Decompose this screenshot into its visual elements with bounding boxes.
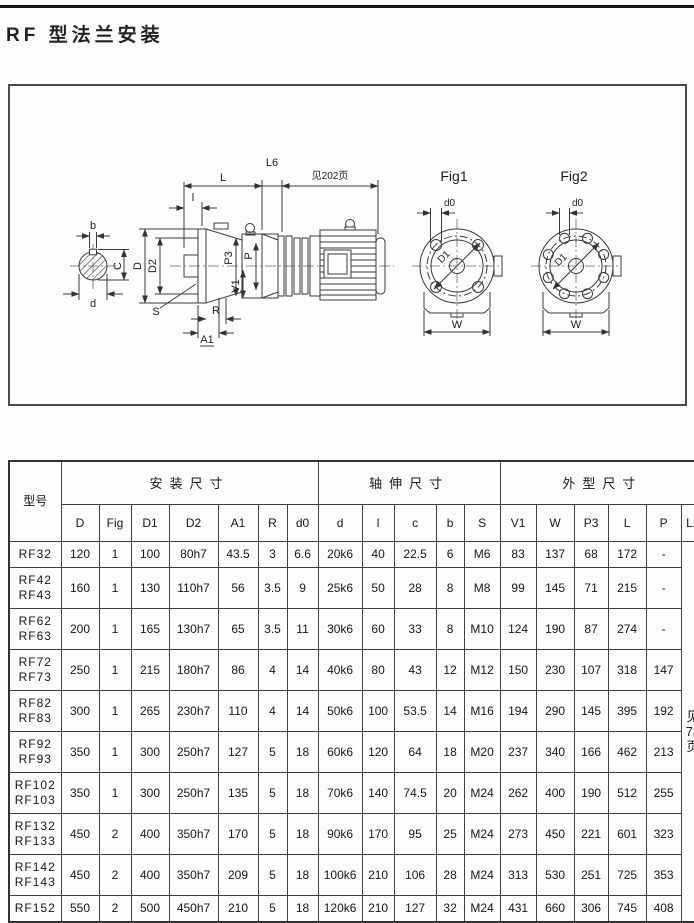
value-cell: 80 — [362, 650, 394, 691]
value-cell: 350 — [61, 732, 99, 773]
value-cell: 660 — [536, 896, 574, 923]
value-cell: 127 — [218, 732, 258, 773]
model-cell: RF82 RF83 — [9, 691, 61, 732]
value-cell: 50k6 — [318, 691, 362, 732]
col-header-R: R — [258, 505, 287, 542]
value-cell: 5 — [258, 814, 287, 855]
value-cell: 165 — [131, 609, 169, 650]
value-cell: 30k6 — [318, 609, 362, 650]
dim-label-C: C — [112, 262, 124, 270]
col-header-P3: P3 — [574, 505, 608, 542]
table-row: RF82 RF833001265230h711041450k610053.514… — [9, 691, 694, 732]
value-cell: 70k6 — [318, 773, 362, 814]
table-row: RF92 RF933501300250h712751860k61206418M2… — [9, 732, 694, 773]
value-cell: 210 — [362, 896, 394, 923]
value-cell: 12 — [436, 650, 464, 691]
value-cell: 500 — [131, 896, 169, 923]
group-header-overall: 外型尺寸 — [500, 461, 694, 505]
value-cell: 11 — [287, 609, 318, 650]
model-cell: RF62 RF63 — [9, 609, 61, 650]
fig1-caption: Fig1 — [440, 168, 467, 184]
value-cell: 25 — [436, 814, 464, 855]
col-header-S: S — [464, 505, 500, 542]
value-cell: 110 — [218, 691, 258, 732]
value-cell: M24 — [464, 773, 500, 814]
value-cell: 395 — [608, 691, 646, 732]
value-cell: 209 — [218, 855, 258, 896]
value-cell: 290 — [536, 691, 574, 732]
col-header-l: l — [362, 505, 394, 542]
value-cell: 262 — [500, 773, 536, 814]
value-cell: 8 — [436, 609, 464, 650]
value-cell: 1 — [99, 568, 131, 609]
col-header-Fig: Fig — [99, 505, 131, 542]
value-cell: 273 — [500, 814, 536, 855]
value-cell: 33 — [394, 609, 436, 650]
dim-label-b: b — [90, 220, 96, 232]
value-cell: 200 — [61, 609, 99, 650]
fig2-d0-label: d0 — [572, 198, 584, 209]
value-cell: 450 — [61, 814, 99, 855]
col-header-L: L — [608, 505, 646, 542]
value-cell: 14 — [436, 691, 464, 732]
value-cell: 400 — [131, 814, 169, 855]
value-cell: 100 — [362, 691, 394, 732]
value-cell: 350h7 — [169, 814, 218, 855]
value-cell: 221 — [574, 814, 608, 855]
value-cell: 215 — [131, 650, 169, 691]
col-header-P: P — [646, 505, 681, 542]
group-header-shaft: 轴伸尺寸 — [318, 461, 500, 505]
value-cell: 90k6 — [318, 814, 362, 855]
drawing-frame: b C d l L L6 见202页 D D2 S A1 R P3 P V1 F — [8, 84, 687, 406]
value-cell: - — [646, 542, 681, 568]
value-cell: 106 — [394, 855, 436, 896]
value-cell: 192 — [646, 691, 681, 732]
value-cell: 56 — [218, 568, 258, 609]
model-column-header: 型号 — [9, 461, 61, 542]
value-cell: M6 — [464, 542, 500, 568]
value-cell: 40k6 — [318, 650, 362, 691]
table-row: RF72 RF732501215180h78641440k6804312M121… — [9, 650, 694, 691]
value-cell: 60k6 — [318, 732, 362, 773]
value-cell: M24 — [464, 855, 500, 896]
value-cell: 28 — [436, 855, 464, 896]
col-header-V1: V1 — [500, 505, 536, 542]
value-cell: 237 — [500, 732, 536, 773]
value-cell: 745 — [608, 896, 646, 923]
value-cell: 140 — [362, 773, 394, 814]
col-header-W: W — [536, 505, 574, 542]
value-cell: 100k6 — [318, 855, 362, 896]
model-cell: RF32 — [9, 542, 61, 568]
value-cell: 265 — [131, 691, 169, 732]
value-cell: 120 — [362, 732, 394, 773]
value-cell: 306 — [574, 896, 608, 923]
value-cell: 124 — [500, 609, 536, 650]
value-cell: 400 — [131, 855, 169, 896]
value-cell: M16 — [464, 691, 500, 732]
table-row: RF102 RF1033501300250h713551870k614074.5… — [9, 773, 694, 814]
value-cell: 170 — [362, 814, 394, 855]
value-cell: 450h7 — [169, 896, 218, 923]
fig1-view — [412, 208, 502, 336]
value-cell: 1 — [99, 609, 131, 650]
value-cell: 18 — [287, 855, 318, 896]
fig1-W-label: W — [452, 319, 463, 331]
value-cell: 4 — [258, 691, 287, 732]
value-cell: 65 — [218, 609, 258, 650]
value-cell: 130 — [131, 568, 169, 609]
value-cell: 210 — [362, 855, 394, 896]
value-cell: 127 — [394, 896, 436, 923]
table-row: RF1525502500450h7210518120k621012732M244… — [9, 896, 694, 923]
value-cell: M24 — [464, 896, 500, 923]
value-cell: 512 — [608, 773, 646, 814]
value-cell: 86 — [218, 650, 258, 691]
value-cell: 147 — [646, 650, 681, 691]
page-title: RF 型法兰安装 — [6, 20, 164, 47]
value-cell: 318 — [608, 650, 646, 691]
model-cell: RF152 — [9, 896, 61, 923]
value-cell: 150 — [500, 650, 536, 691]
dim-label-V1: V1 — [230, 279, 242, 292]
model-cell: RF92 RF93 — [9, 732, 61, 773]
value-cell: 2 — [99, 855, 131, 896]
value-cell: 74.5 — [394, 773, 436, 814]
technical-drawing: b C d l L L6 见202页 D D2 S A1 R P3 P V1 F — [10, 86, 681, 400]
value-cell: 166 — [574, 732, 608, 773]
value-cell: 18 — [287, 773, 318, 814]
value-cell: 230 — [536, 650, 574, 691]
value-cell: 40 — [362, 542, 394, 568]
value-cell: 450 — [536, 814, 574, 855]
value-cell: 60 — [362, 609, 394, 650]
value-cell: 601 — [608, 814, 646, 855]
value-cell: 99 — [500, 568, 536, 609]
value-cell: 145 — [574, 691, 608, 732]
dim-label-D2: D2 — [147, 259, 159, 273]
dim-label-P3: P3 — [223, 251, 235, 264]
value-cell: 100 — [131, 542, 169, 568]
fig2-caption: Fig2 — [560, 168, 587, 184]
value-cell: 18 — [287, 896, 318, 923]
value-cell: 255 — [646, 773, 681, 814]
value-cell: 340 — [536, 732, 574, 773]
value-cell: 18 — [287, 814, 318, 855]
fig2-view — [531, 208, 621, 336]
value-cell: 14 — [287, 650, 318, 691]
value-cell: 251 — [574, 855, 608, 896]
value-cell: 300 — [61, 691, 99, 732]
value-cell: 300 — [131, 732, 169, 773]
value-cell: 107 — [574, 650, 608, 691]
value-cell: 20 — [436, 773, 464, 814]
value-cell: 350h7 — [169, 855, 218, 896]
dim-label-P: P — [243, 252, 255, 259]
dim-label-L: L — [220, 172, 226, 184]
value-cell: 83 — [500, 542, 536, 568]
value-cell: 462 — [608, 732, 646, 773]
value-cell: 120 — [61, 542, 99, 568]
value-cell: 1 — [99, 773, 131, 814]
value-cell: 180h7 — [169, 650, 218, 691]
value-cell: 145 — [536, 568, 574, 609]
see-page-note: 见202页 — [312, 170, 349, 182]
value-cell: M20 — [464, 732, 500, 773]
value-cell: 350 — [61, 773, 99, 814]
value-cell: 250 — [61, 650, 99, 691]
value-cell: 95 — [394, 814, 436, 855]
value-cell: 6.6 — [287, 542, 318, 568]
table-body: RF32120110080h743.536.620k64022.56M68313… — [9, 542, 694, 923]
table-row: RF142 RF1434502400350h7209518100k6210106… — [9, 855, 694, 896]
value-cell: 3.5 — [258, 568, 287, 609]
value-cell: M24 — [464, 814, 500, 855]
value-cell: 190 — [536, 609, 574, 650]
col-header-d0: d0 — [287, 505, 318, 542]
value-cell: 64 — [394, 732, 436, 773]
table-row: RF42 RF431601130110h7563.5925k650288M899… — [9, 568, 694, 609]
value-cell: 250h7 — [169, 732, 218, 773]
value-cell: 1 — [99, 691, 131, 732]
value-cell: 530 — [536, 855, 574, 896]
value-cell: 408 — [646, 896, 681, 923]
value-cell: 20k6 — [318, 542, 362, 568]
dim-label-l: l — [192, 192, 194, 204]
value-cell: M12 — [464, 650, 500, 691]
value-cell: 215 — [608, 568, 646, 609]
value-cell: 9 — [287, 568, 318, 609]
value-cell: 313 — [500, 855, 536, 896]
value-cell: 5 — [258, 855, 287, 896]
value-cell: 5 — [258, 896, 287, 923]
value-cell: 170 — [218, 814, 258, 855]
col-header-b: b — [436, 505, 464, 542]
value-cell: 120k6 — [318, 896, 362, 923]
value-cell: 5 — [258, 773, 287, 814]
value-cell: 1 — [99, 650, 131, 691]
value-cell: 550 — [61, 896, 99, 923]
value-cell: 14 — [287, 691, 318, 732]
value-cell: 1 — [99, 542, 131, 568]
dimension-table: 型号 安装尺寸 轴伸尺寸 外型尺寸 D Fig D1 D2 A1 R d0 d … — [8, 460, 694, 923]
table-sub-header-row: D Fig D1 D2 A1 R d0 d l c b S V1 W P3 L … — [9, 505, 694, 542]
value-cell: 210 — [218, 896, 258, 923]
table-row: RF132 RF1334502400350h717051890k61709525… — [9, 814, 694, 855]
value-cell: 18 — [436, 732, 464, 773]
value-cell: 213 — [646, 732, 681, 773]
value-cell: 68 — [574, 542, 608, 568]
model-cell: RF102 RF103 — [9, 773, 61, 814]
value-cell: 300 — [131, 773, 169, 814]
value-cell: 25k6 — [318, 568, 362, 609]
value-cell: - — [646, 609, 681, 650]
value-cell: 431 — [500, 896, 536, 923]
value-cell: 18 — [287, 732, 318, 773]
value-cell: 110h7 — [169, 568, 218, 609]
value-cell: 130h7 — [169, 609, 218, 650]
value-cell: 190 — [574, 773, 608, 814]
col-header-L2: L2 — [681, 505, 694, 542]
model-cell: RF132 RF133 — [9, 814, 61, 855]
dim-label-L6: L6 — [266, 157, 278, 169]
value-cell: 2 — [99, 814, 131, 855]
value-cell: 71 — [574, 568, 608, 609]
top-rule — [0, 5, 694, 8]
value-cell: 250h7 — [169, 773, 218, 814]
value-cell: 22.5 — [394, 542, 436, 568]
value-cell: 194 — [500, 691, 536, 732]
dim-label-A1: A1 — [200, 334, 213, 346]
value-cell: 137 — [536, 542, 574, 568]
value-cell: 32 — [436, 896, 464, 923]
value-cell: 43.5 — [218, 542, 258, 568]
col-header-d: d — [318, 505, 362, 542]
col-header-c: c — [394, 505, 436, 542]
gearmotor-outline — [184, 220, 385, 304]
group-header-mounting: 安装尺寸 — [61, 461, 318, 505]
fig1-d0-label: d0 — [444, 198, 456, 209]
table-row: RF32120110080h743.536.620k64022.56M68313… — [9, 542, 694, 568]
value-cell: 8 — [436, 568, 464, 609]
value-cell: 172 — [608, 542, 646, 568]
value-cell: 323 — [646, 814, 681, 855]
value-cell: 28 — [394, 568, 436, 609]
value-cell: 87 — [574, 609, 608, 650]
dim-label-d: d — [90, 298, 96, 310]
value-cell: 4 — [258, 650, 287, 691]
value-cell: 6 — [436, 542, 464, 568]
value-cell: 3 — [258, 542, 287, 568]
value-cell: M10 — [464, 609, 500, 650]
dim-label-D: D — [132, 262, 144, 270]
value-cell: 450 — [61, 855, 99, 896]
table-group-header-row: 型号 安装尺寸 轴伸尺寸 外型尺寸 — [9, 461, 694, 505]
value-cell: 274 — [608, 609, 646, 650]
model-cell: RF142 RF143 — [9, 855, 61, 896]
model-cell: RF42 RF43 — [9, 568, 61, 609]
l2-note-cell: 见 72 页 — [681, 542, 694, 923]
col-header-D1: D1 — [131, 505, 169, 542]
dim-label-S: S — [152, 306, 159, 318]
fig2-W-label: W — [571, 319, 582, 331]
value-cell: 3.5 — [258, 609, 287, 650]
col-header-D2: D2 — [169, 505, 218, 542]
dim-label-R: R — [212, 305, 220, 317]
value-cell: 725 — [608, 855, 646, 896]
value-cell: 160 — [61, 568, 99, 609]
value-cell: 2 — [99, 896, 131, 923]
value-cell: 230h7 — [169, 691, 218, 732]
col-header-A1: A1 — [218, 505, 258, 542]
value-cell: 1 — [99, 732, 131, 773]
table-row: RF62 RF632001165130h7653.51130k660338M10… — [9, 609, 694, 650]
value-cell: 135 — [218, 773, 258, 814]
model-cell: RF72 RF73 — [9, 650, 61, 691]
value-cell: M8 — [464, 568, 500, 609]
col-header-D: D — [61, 505, 99, 542]
value-cell: 53.5 — [394, 691, 436, 732]
value-cell: 50 — [362, 568, 394, 609]
value-cell: 5 — [258, 732, 287, 773]
value-cell: 353 — [646, 855, 681, 896]
value-cell: 80h7 — [169, 542, 218, 568]
value-cell: 43 — [394, 650, 436, 691]
value-cell: 400 — [536, 773, 574, 814]
value-cell: - — [646, 568, 681, 609]
